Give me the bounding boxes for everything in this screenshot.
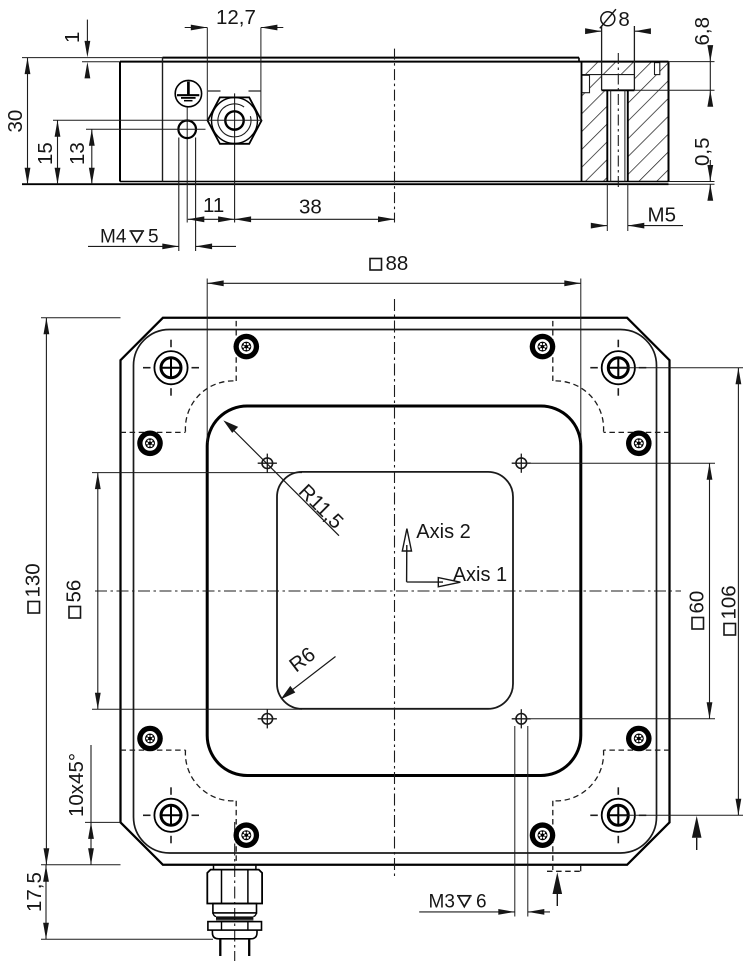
- svg-text:17,5: 17,5: [23, 872, 46, 912]
- svg-text:1: 1: [61, 32, 84, 43]
- svg-text:56: 56: [63, 580, 86, 603]
- svg-text:M4: M4: [100, 226, 127, 247]
- svg-text:6: 6: [476, 892, 487, 913]
- svg-text:12,7: 12,7: [216, 6, 256, 29]
- svg-text:10x45°: 10x45°: [65, 753, 88, 817]
- svg-text:Axis 1: Axis 1: [453, 564, 507, 586]
- svg-text:11: 11: [203, 194, 224, 217]
- svg-text:13: 13: [66, 142, 89, 165]
- svg-text:106: 106: [718, 585, 741, 619]
- svg-text:15: 15: [34, 142, 57, 165]
- svg-text:30: 30: [4, 110, 27, 133]
- svg-text:0,5: 0,5: [691, 138, 714, 167]
- svg-text:Axis 2: Axis 2: [416, 521, 470, 543]
- svg-text:5: 5: [148, 226, 159, 247]
- svg-text:60: 60: [686, 591, 709, 614]
- svg-text:M3: M3: [429, 892, 455, 913]
- svg-text:130: 130: [22, 563, 45, 597]
- svg-text:88: 88: [386, 252, 409, 275]
- svg-text:38: 38: [299, 196, 322, 219]
- svg-text:6,8: 6,8: [691, 17, 714, 46]
- svg-text:M5: M5: [648, 204, 676, 227]
- svg-text:8: 8: [618, 8, 629, 31]
